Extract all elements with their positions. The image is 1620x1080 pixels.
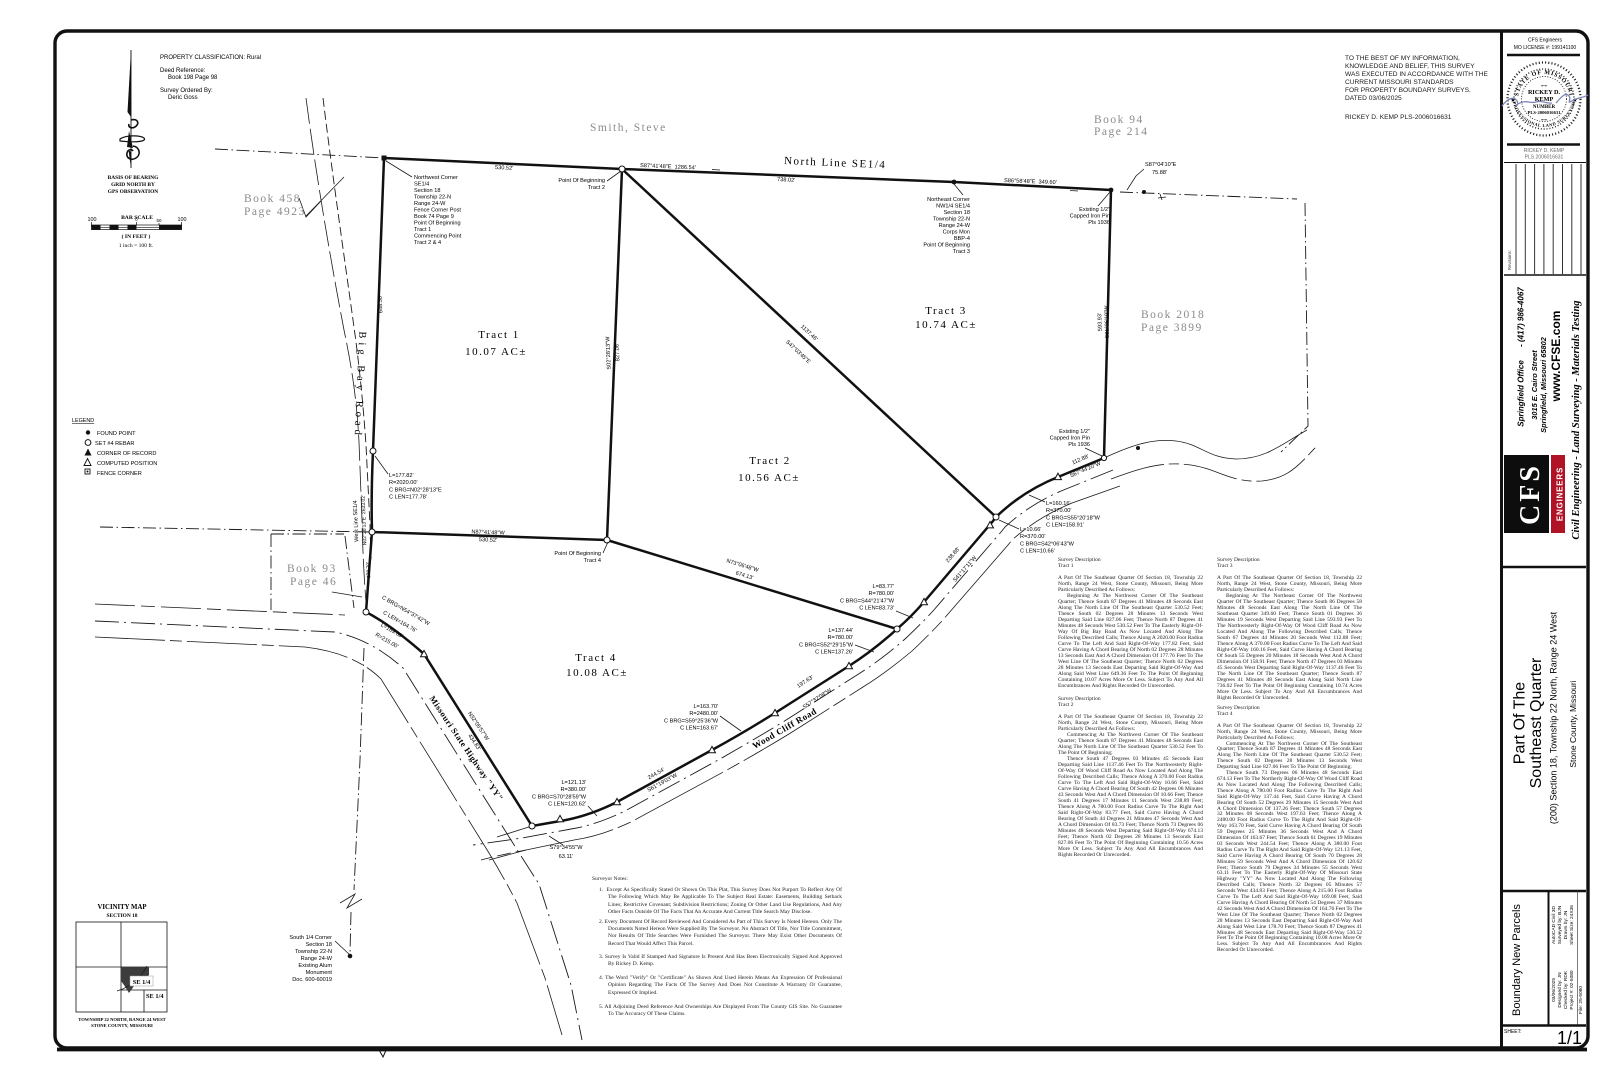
svg-text:Drawn by: JN: Drawn by: JN (1563, 910, 1569, 939)
svg-text:738.02': 738.02' (777, 177, 795, 184)
svg-text:File: 25-5080: File: 25-5080 (1578, 986, 1584, 1014)
svg-text:Smith, Steve: Smith, Steve (590, 122, 667, 134)
svg-text:SE 1/4: SE 1/4 (133, 979, 151, 986)
svg-text:C LEN=137.26': C LEN=137.26' (815, 650, 853, 656)
svg-text:1137.46': 1137.46' (799, 324, 818, 343)
svg-text:Project #: 02-5080: Project #: 02-5080 (1569, 970, 1575, 1010)
svg-text:www.CFSE.com: www.CFSE.com (1549, 311, 1563, 403)
svg-text:Capped Iron Pin: Capped Iron Pin (1070, 214, 1110, 220)
svg-text:C LEN=83.73': C LEN=83.73' (859, 606, 894, 612)
svg-text:S47°03'45"E: S47°03'45"E (784, 339, 811, 365)
svg-text:Checked by: RDK: Checked by: RDK (1563, 970, 1569, 1009)
svg-text:Big Bay Road: Big Bay Road (352, 331, 368, 439)
svg-text:1 inch = 100 ft.: 1 inch = 100 ft. (119, 242, 154, 249)
svg-text:Point Of Beginning: Point Of Beginning (554, 551, 601, 557)
svg-text:Part Of The: Part Of The (1512, 682, 1529, 765)
svg-text:Page 214: Page 214 (1094, 126, 1148, 138)
svg-text:Commencing Point: Commencing Point (414, 234, 462, 240)
svg-text:R=2020.00': R=2020.00' (389, 480, 418, 486)
svg-text:Page 3899: Page 3899 (1141, 322, 1203, 334)
svg-text:Monument: Monument (306, 970, 333, 976)
svg-text:Tract 2: Tract 2 (749, 455, 791, 467)
svg-text:South 1/4 Corner: South 1/4 Corner (289, 935, 332, 941)
svg-text:10.08 AC±: 10.08 AC± (566, 667, 628, 679)
svg-text:PLS 2006016631: PLS 2006016631 (1525, 155, 1564, 161)
svg-text:Missouri State Highway "YY": Missouri State Highway "YY" (427, 694, 505, 803)
svg-text:L=137.44': L=137.44' (828, 628, 853, 634)
svg-text:ENGINEERS: ENGINEERS (1556, 467, 1565, 521)
svg-text:Range 24-W: Range 24-W (414, 201, 446, 207)
svg-text:S01°36'19"W: S01°36'19"W (1104, 305, 1111, 339)
svg-text:Doc. 600-60019: Doc. 600-60019 (292, 977, 332, 983)
svg-text:S02°28'13"W: S02°28'13"W (605, 336, 612, 370)
svg-text:197.63': 197.63' (796, 675, 815, 690)
svg-text:Tract 1: Tract 1 (478, 329, 520, 341)
svg-text:VICINITY MAP: VICINITY MAP (97, 904, 146, 911)
svg-text:Tract 4: Tract 4 (575, 652, 617, 664)
svg-text:West Line SE1/4: West Line SE1/4 (353, 500, 360, 542)
svg-text:Existing 1/2": Existing 1/2" (1059, 429, 1090, 435)
svg-text:10.56 AC±: 10.56 AC± (738, 472, 800, 484)
svg-text:( IN FEET ): ( IN FEET ) (122, 233, 151, 240)
svg-text:648.30': 648.30' (378, 295, 385, 313)
svg-text:Tract 2 & 4: Tract 2 & 4 (414, 240, 441, 246)
svg-text:N02°28'13"E 2633.02': N02°28'13"E 2633.02' (361, 495, 369, 545)
svg-text:Tract 3: Tract 3 (925, 305, 967, 317)
svg-text:3015 E. Cairo Street: 3015 E. Cairo Street (1530, 350, 1539, 420)
svg-text:━·━: ━·━ (1540, 118, 1547, 122)
svg-text:S79°34'55"W: S79°34'55"W (550, 845, 584, 851)
svg-text:Page 4923: Page 4923 (244, 206, 306, 218)
svg-text:Tract 4: Tract 4 (584, 558, 601, 564)
svg-text:Book 458: Book 458 (244, 193, 301, 205)
svg-text:SHEET:: SHEET: (1504, 1029, 1522, 1035)
svg-text:SE1/4: SE1/4 (414, 182, 429, 188)
svg-text:L=83.77': L=83.77' (873, 584, 894, 590)
svg-text:1/1: 1/1 (1557, 1028, 1582, 1048)
svg-text:75.88': 75.88' (1152, 170, 1167, 176)
svg-text:03/06/2025: 03/06/2025 (1551, 978, 1557, 1002)
svg-text:Tract 1: Tract 1 (414, 227, 431, 233)
svg-text:R=370.00': R=370.00' (1020, 534, 1045, 540)
svg-text:Survey Ordered By:: Survey Ordered By: (160, 88, 213, 94)
svg-text:Point Of Beginning: Point Of Beginning (923, 243, 970, 249)
svg-text:Civil Engineering - Land Surve: Civil Engineering - Land Surveying - Mat… (1571, 300, 1582, 539)
svg-text:Southeast Quarter: Southeast Quarter (1528, 657, 1545, 788)
svg-text:AutoCAD Civil 3D: AutoCAD Civil 3D (1551, 906, 1557, 944)
svg-text:Springfield Office - (417: Springfield Office - (417) 986-4067 (1517, 287, 1526, 427)
svg-text:530.52': 530.52' (495, 165, 513, 172)
svg-text:CFS: CFS (1515, 463, 1546, 525)
svg-text:Page 46: Page 46 (290, 576, 337, 588)
svg-text:Fence Corner Post: Fence Corner Post (414, 208, 461, 214)
svg-text:C LEN=120.62': C LEN=120.62' (548, 802, 586, 808)
svg-text:C BRG=S44°21'47"W: C BRG=S44°21'47"W (840, 598, 895, 604)
svg-text:Capped Iron Pin: Capped Iron Pin (1050, 436, 1090, 442)
svg-text:R=2480.00': R=2480.00' (689, 711, 718, 717)
svg-text:C LEN=158.91': C LEN=158.91' (1046, 523, 1084, 529)
svg-text:Existing 1/2": Existing 1/2" (1079, 207, 1110, 213)
svg-text:S57°32'08"W: S57°32'08"W (802, 687, 834, 710)
svg-text:COMPUTED POSITION: COMPUTED POSITION (97, 461, 157, 467)
svg-text:C LEN=163.67': C LEN=163.67' (680, 726, 718, 732)
svg-text:Range 24-W: Range 24-W (939, 223, 971, 229)
svg-text:L=10.66': L=10.66' (1020, 527, 1041, 533)
svg-text:50: 50 (157, 218, 162, 223)
svg-text:PLS-2006016631: PLS-2006016631 (1528, 110, 1562, 115)
svg-text:C BRG=N02°28'13"E: C BRG=N02°28'13"E (389, 487, 442, 493)
svg-text:10.74 AC±: 10.74 AC± (915, 319, 977, 331)
svg-text:━·━: ━·━ (1540, 84, 1547, 88)
svg-text:Tract 3: Tract 3 (953, 249, 970, 255)
svg-text:100: 100 (178, 217, 187, 223)
svg-text:Revisions:: Revisions: (1507, 250, 1512, 270)
svg-text:LEGEND: LEGEND (72, 418, 94, 424)
svg-text:Point Of Beginning: Point Of Beginning (414, 221, 461, 227)
svg-text:Northeast Corner: Northeast Corner (927, 197, 970, 203)
svg-text:Boundary New Parcels: Boundary New Parcels (1511, 904, 1523, 1016)
svg-text:RICKEY D.: RICKEY D. (1528, 89, 1561, 96)
svg-text:S41°17'11"W: S41°17'11"W (952, 555, 978, 584)
svg-text:Sheet Size: 24X36: Sheet Size: 24X36 (1569, 905, 1575, 945)
svg-text:Pls 1936: Pls 1936 (1068, 442, 1090, 448)
svg-text:Range 24-W: Range 24-W (301, 956, 333, 962)
svg-text:S87°04'10"E: S87°04'10"E (1145, 162, 1177, 168)
svg-text:Deric Goss: Deric Goss (168, 95, 198, 101)
svg-text:L=163.70': L=163.70' (693, 704, 718, 710)
svg-text:N87°41'48"W: N87°41'48"W (471, 529, 505, 536)
svg-text:Book 93: Book 93 (287, 563, 337, 575)
svg-text:Section 18: Section 18 (306, 942, 332, 948)
svg-text:C BRG=S42°06'43"W: C BRG=S42°06'43"W (1020, 541, 1075, 547)
svg-text:593.93': 593.93' (1097, 313, 1103, 331)
svg-text:Township 22-N: Township 22-N (933, 217, 970, 223)
svg-text:STONE COUNTY, MISSOURI: STONE COUNTY, MISSOURI (91, 1023, 153, 1028)
svg-text:Book 74 Page 9: Book 74 Page 9 (414, 214, 454, 220)
svg-text:C BRG=S59°25'36"W: C BRG=S59°25'36"W (664, 718, 719, 724)
svg-text:Springfield, Missouri 65802: Springfield, Missouri 65802 (1539, 336, 1548, 433)
svg-text:10.07 AC±: 10.07 AC± (465, 346, 527, 358)
svg-text:L=121.13': L=121.13' (561, 780, 586, 786)
svg-text:Township 22-N: Township 22-N (295, 949, 332, 955)
svg-text:SE 1/4: SE 1/4 (146, 993, 164, 1000)
svg-text:C LEN=10.66': C LEN=10.66' (1020, 549, 1055, 555)
svg-text:Deed Reference:: Deed Reference: (160, 68, 206, 74)
svg-text:North Line SE1/4: North Line SE1/4 (784, 155, 887, 171)
svg-text:MO LICENSE #: 199141100: MO LICENSE #: 199141100 (1514, 45, 1577, 51)
svg-text:Wood Cliff Road: Wood Cliff Road (751, 706, 819, 751)
svg-text:CFS Engineers: CFS Engineers (1528, 38, 1562, 44)
svg-text:BASIS OF BEARING: BASIS OF BEARING (108, 175, 160, 181)
svg-text:C BRG=S70°28'59"W: C BRG=S70°28'59"W (532, 794, 587, 800)
svg-text:Tract 2: Tract 2 (588, 185, 605, 191)
svg-text:GRID NORTH BY: GRID NORTH BY (111, 182, 155, 188)
svg-text:L=160.16': L=160.16' (1046, 501, 1071, 507)
svg-text:Northwest Corner: Northwest Corner (414, 175, 458, 181)
svg-text:Corps Mon: Corps Mon (943, 230, 970, 236)
svg-text:R=370.00': R=370.00' (1046, 508, 1071, 514)
svg-text:FOUND POINT: FOUND POINT (97, 431, 136, 437)
svg-text:BBP-4: BBP-4 (954, 236, 970, 242)
svg-text:NW1/4 SE1/4: NW1/4 SE1/4 (936, 204, 970, 210)
svg-text:TOWNSHIP 22 NORTH, RANGE 24 WE: TOWNSHIP 22 NORTH, RANGE 24 WEST (78, 1017, 165, 1022)
svg-text:C LEN=177.78': C LEN=177.78' (389, 495, 427, 501)
svg-text:R=780.00': R=780.00' (828, 635, 853, 641)
svg-text:CORNER OF RECORD: CORNER OF RECORD (97, 451, 156, 457)
svg-text:178.70': 178.70' (366, 562, 373, 578)
svg-text:RICKEY D. KEMP: RICKEY D. KEMP (1524, 148, 1565, 154)
svg-text:Section 18: Section 18 (944, 210, 970, 216)
svg-text:C BRG=S52°29'15"W: C BRG=S52°29'15"W (799, 642, 854, 648)
svg-text:63.11': 63.11' (559, 854, 574, 860)
svg-text:Point Of Beginning: Point Of Beginning (558, 178, 605, 184)
svg-text:Stone County, Missouri: Stone County, Missouri (1568, 680, 1578, 767)
svg-text:Section 18: Section 18 (414, 188, 440, 194)
svg-text:Surveyed by: BJN: Surveyed by: BJN (1557, 905, 1563, 944)
svg-text:Designed by: JN: Designed by: JN (1557, 972, 1563, 1008)
svg-text:Book 198 Page 98: Book 198 Page 98 (168, 75, 218, 81)
svg-text:(200) Section 18, Township 22: (200) Section 18, Township 22 North, Ran… (1549, 611, 1559, 824)
svg-text:R=380.00': R=380.00' (561, 787, 586, 793)
svg-text:Pls 1936: Pls 1936 (1088, 220, 1110, 226)
svg-text:Existing Alum: Existing Alum (298, 963, 332, 969)
svg-text:SECTION 18: SECTION 18 (106, 913, 137, 919)
svg-text:Book 94: Book 94 (1094, 114, 1144, 126)
svg-text:C BRG=S55°20'18"W: C BRG=S55°20'18"W (1046, 515, 1101, 521)
svg-text:530.52': 530.52' (479, 537, 497, 544)
svg-text:L=177.82': L=177.82' (389, 473, 414, 479)
svg-text:100: 100 (88, 217, 97, 223)
svg-text:SET #4 REBAR: SET #4 REBAR (95, 441, 134, 447)
svg-text:Township 22-N: Township 22-N (414, 195, 451, 201)
svg-text:R=780.00': R=780.00' (869, 591, 894, 597)
svg-text:Book 2018: Book 2018 (1141, 309, 1205, 321)
svg-text:GPS OBSERVATION: GPS OBSERVATION (108, 189, 158, 195)
svg-text:FENCE CORNER: FENCE CORNER (97, 471, 142, 477)
svg-text:827.06': 827.06' (615, 343, 622, 361)
svg-text:PROPERTY CLASSIFICATION: Rural: PROPERTY CLASSIFICATION: Rural (160, 55, 261, 61)
